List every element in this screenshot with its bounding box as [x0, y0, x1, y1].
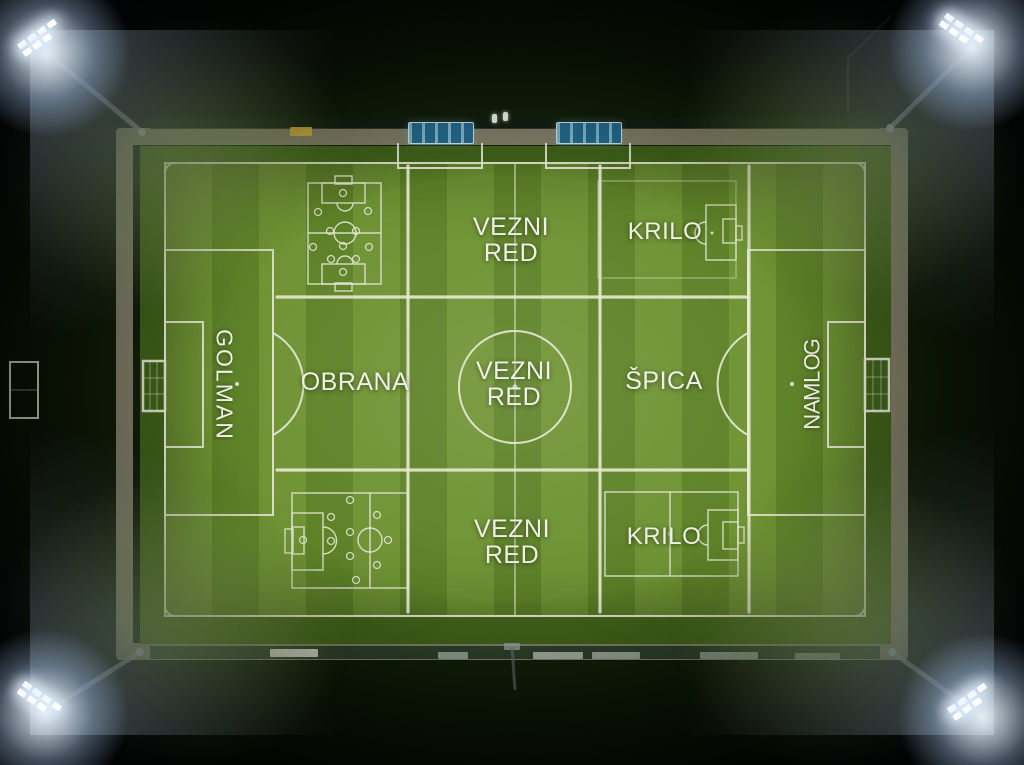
- zone-label-midfield-center: VEZNI RED: [476, 358, 552, 410]
- mini-diagram-formation-top-left: [308, 176, 381, 291]
- goal-area-left: [165, 322, 203, 447]
- technical-area-box-left: [398, 143, 482, 168]
- penalty-arc-right: [718, 333, 748, 435]
- technical-area-box-right: [546, 143, 630, 168]
- corner-arc: [165, 606, 175, 616]
- zone-label-midfield-bottom: VEZNI RED: [474, 516, 550, 568]
- stadium-aerial-scene: GOLMAN OBRANA VEZNI RED KRILO VEZNI RED …: [0, 0, 1024, 765]
- zone-label-line: RED: [474, 542, 550, 568]
- zone-label-line: RED: [476, 384, 552, 410]
- zone-label-midfield-top: VEZNI RED: [473, 214, 549, 266]
- zone-label-line: VEZNI: [473, 214, 549, 240]
- goal-right: [865, 359, 889, 411]
- goal-area-right: [828, 322, 865, 447]
- zone-label-line: VEZNI: [476, 358, 552, 384]
- zone-label-wing-bottom: KRILO: [627, 524, 702, 550]
- zone-label-line: VEZNI: [474, 516, 550, 542]
- zone-label-defense: OBRANA: [301, 369, 410, 395]
- camera-mast: [512, 647, 515, 690]
- corner-arc: [855, 606, 865, 616]
- corner-arc: [165, 163, 175, 173]
- zone-label-wing-top: KRILO: [628, 219, 703, 245]
- penalty-spot-right: [790, 382, 794, 386]
- zone-label-striker: ŠPICA: [625, 368, 703, 394]
- fence-line: [848, 14, 893, 110]
- zone-label-goalkeeper-left: GOLMAN: [213, 329, 236, 441]
- rotated-letter: N: [805, 409, 820, 435]
- zone-label-goalkeeper-right: GOLMAN: [799, 339, 825, 429]
- penalty-arc-left: [273, 333, 303, 435]
- goal-left: [143, 361, 165, 411]
- corner-arc: [855, 163, 865, 173]
- training-goal-outside-left: [10, 362, 38, 418]
- zone-label-line: RED: [473, 240, 549, 266]
- mini-diagram-formation-bottom-left: [285, 493, 408, 588]
